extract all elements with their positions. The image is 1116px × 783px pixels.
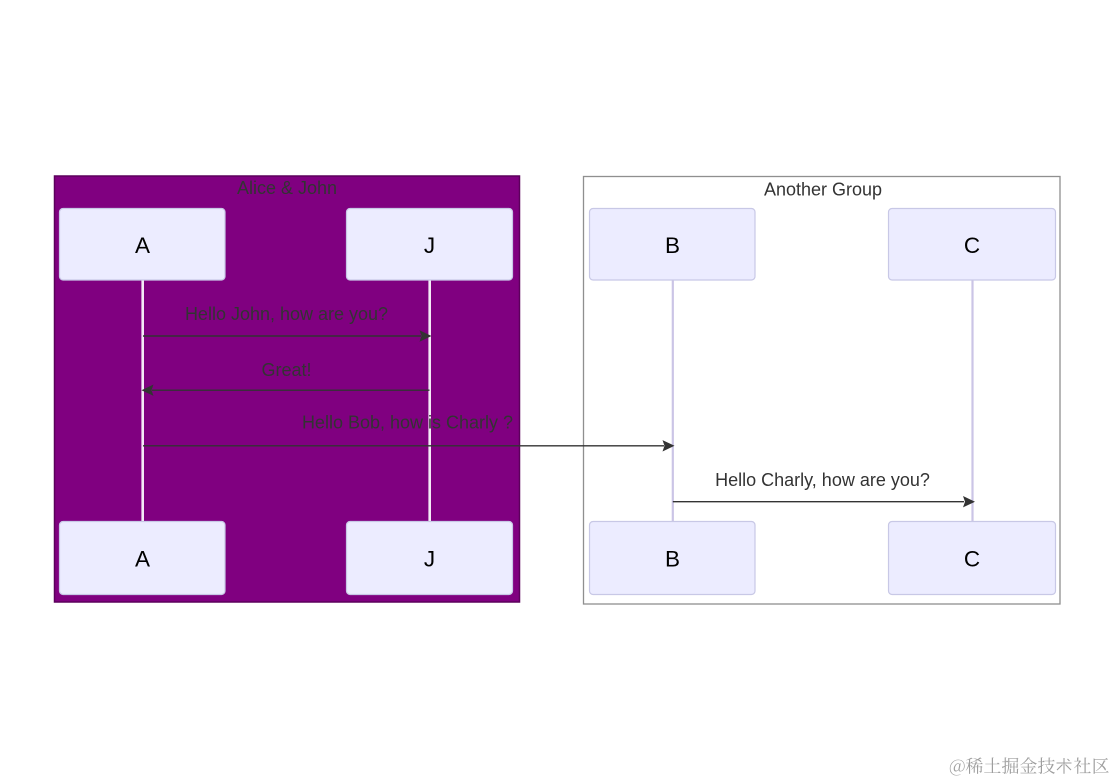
svg-text:A: A [135,547,150,572]
svg-text:Hello Bob, how is Charly ?: Hello Bob, how is Charly ? [302,413,513,433]
svg-text:B: B [665,547,680,572]
svg-text:J: J [424,547,435,572]
svg-text:A: A [135,233,150,258]
svg-text:C: C [964,233,980,258]
svg-text:B: B [665,233,680,258]
svg-text:J: J [424,233,435,258]
svg-text:Alice & John: Alice & John [237,178,337,198]
svg-text:Another Group: Another Group [764,180,882,200]
svg-text:Hello Charly, how are you?: Hello Charly, how are you? [715,470,930,490]
svg-text:Great!: Great! [261,360,311,380]
svg-text:C: C [964,547,980,572]
svg-text:Hello John, how are you?: Hello John, how are you? [185,304,388,324]
